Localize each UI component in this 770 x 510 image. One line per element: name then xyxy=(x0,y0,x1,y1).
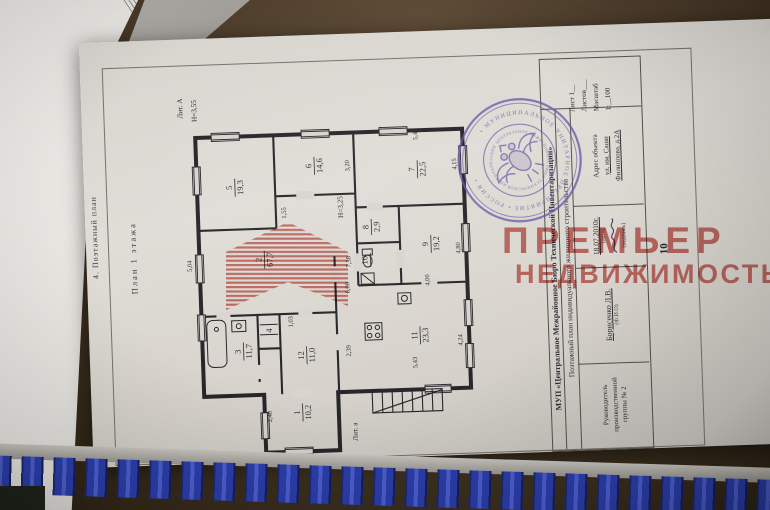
svg-text:19,2: 19,2 xyxy=(431,236,442,251)
svg-text:5,43: 5,43 xyxy=(412,357,419,369)
svg-text:4: 4 xyxy=(264,328,274,333)
svg-text:Лит. А: Лит. А xyxy=(176,98,185,119)
room-label-8: 82,9 xyxy=(360,219,382,236)
svg-text:4,00: 4,00 xyxy=(424,274,431,286)
sink-icon xyxy=(361,273,374,284)
svg-text:Лит. а: Лит. а xyxy=(351,422,360,441)
svg-text:3,20: 3,20 xyxy=(344,160,351,172)
svg-text:8: 8 xyxy=(360,225,370,230)
svg-text:1,03: 1,03 xyxy=(287,316,294,328)
kitchen-sink-icon xyxy=(398,293,411,304)
svg-text:1: 1 xyxy=(292,410,302,415)
svg-text:7: 7 xyxy=(406,167,416,172)
stove-icon xyxy=(365,323,383,341)
svg-text:22,5: 22,5 xyxy=(417,162,428,177)
room-label-6: 614,6 xyxy=(303,157,325,176)
svg-text:10,2: 10,2 xyxy=(303,405,314,420)
photo-of-document: 4. Поэтажный план План 1 этажа xyxy=(0,0,770,510)
bathtub-icon xyxy=(207,320,228,368)
round-stamp: • МУНИЦИПАЛЬНОЕ УНИТАРНОЕ ПРЕДПРИЯТИЕ • … xyxy=(450,90,590,230)
svg-text:6: 6 xyxy=(303,164,313,169)
room-label-5: 519,3 xyxy=(224,178,246,197)
executive-role-cell: Руководитель производственной группы № 2 xyxy=(600,363,631,446)
svg-text:11: 11 xyxy=(409,331,419,340)
svg-text:Н=3,55: Н=3,55 xyxy=(190,100,199,122)
svg-text:4,80: 4,80 xyxy=(455,242,462,254)
section-title: 4. Поэтажный план xyxy=(89,196,101,279)
watermark-building-icon xyxy=(212,220,352,312)
svg-text:12: 12 xyxy=(296,351,306,360)
svg-text:Н=3,25: Н=3,25 xyxy=(336,196,345,218)
svg-text:2,39: 2,39 xyxy=(346,345,353,357)
svg-text:9: 9 xyxy=(420,242,430,247)
room-label-12: 1211,0 xyxy=(296,346,318,365)
object-address-cell: Адрес объекта ул. им. Саши Филиппова, д.… xyxy=(589,109,625,202)
svg-text:5: 5 xyxy=(224,186,234,191)
svg-text:4,24: 4,24 xyxy=(457,333,464,345)
watermark-text: ПРЕМЬЕР НЕДВИЖИМОСТЬ xyxy=(502,222,770,288)
svg-text:1,55: 1,55 xyxy=(281,207,288,219)
room-label-4: 4 xyxy=(264,328,274,333)
room-label-1: 110,2 xyxy=(292,403,314,422)
watermark-line2: НЕДВИЖИМОСТЬ xyxy=(515,261,770,288)
svg-text:5,04: 5,04 xyxy=(186,260,193,272)
svg-text:11,0: 11,0 xyxy=(307,348,318,363)
washbasin-icon xyxy=(232,320,246,331)
table-corner-shadow xyxy=(0,486,45,510)
room-label-11: 1123,3 xyxy=(409,326,431,345)
svg-text:23,3: 23,3 xyxy=(420,328,431,343)
svg-text:5,43: 5,43 xyxy=(412,129,419,141)
svg-text:2,9: 2,9 xyxy=(371,221,381,232)
svg-text:3: 3 xyxy=(233,349,243,354)
room-label-3: 311,7 xyxy=(232,342,254,361)
svg-text:14,6: 14,6 xyxy=(314,158,325,173)
svg-text:2,40: 2,40 xyxy=(267,411,274,423)
svg-text:11,7: 11,7 xyxy=(243,344,254,359)
room-label-9: 919,2 xyxy=(420,235,442,254)
svg-text:10: 10 xyxy=(359,256,369,265)
room-label-7: 722,5 xyxy=(406,160,428,179)
svg-text:19,3: 19,3 xyxy=(235,180,246,195)
watermark-line1: ПРЕМЬЕР xyxy=(502,222,770,259)
